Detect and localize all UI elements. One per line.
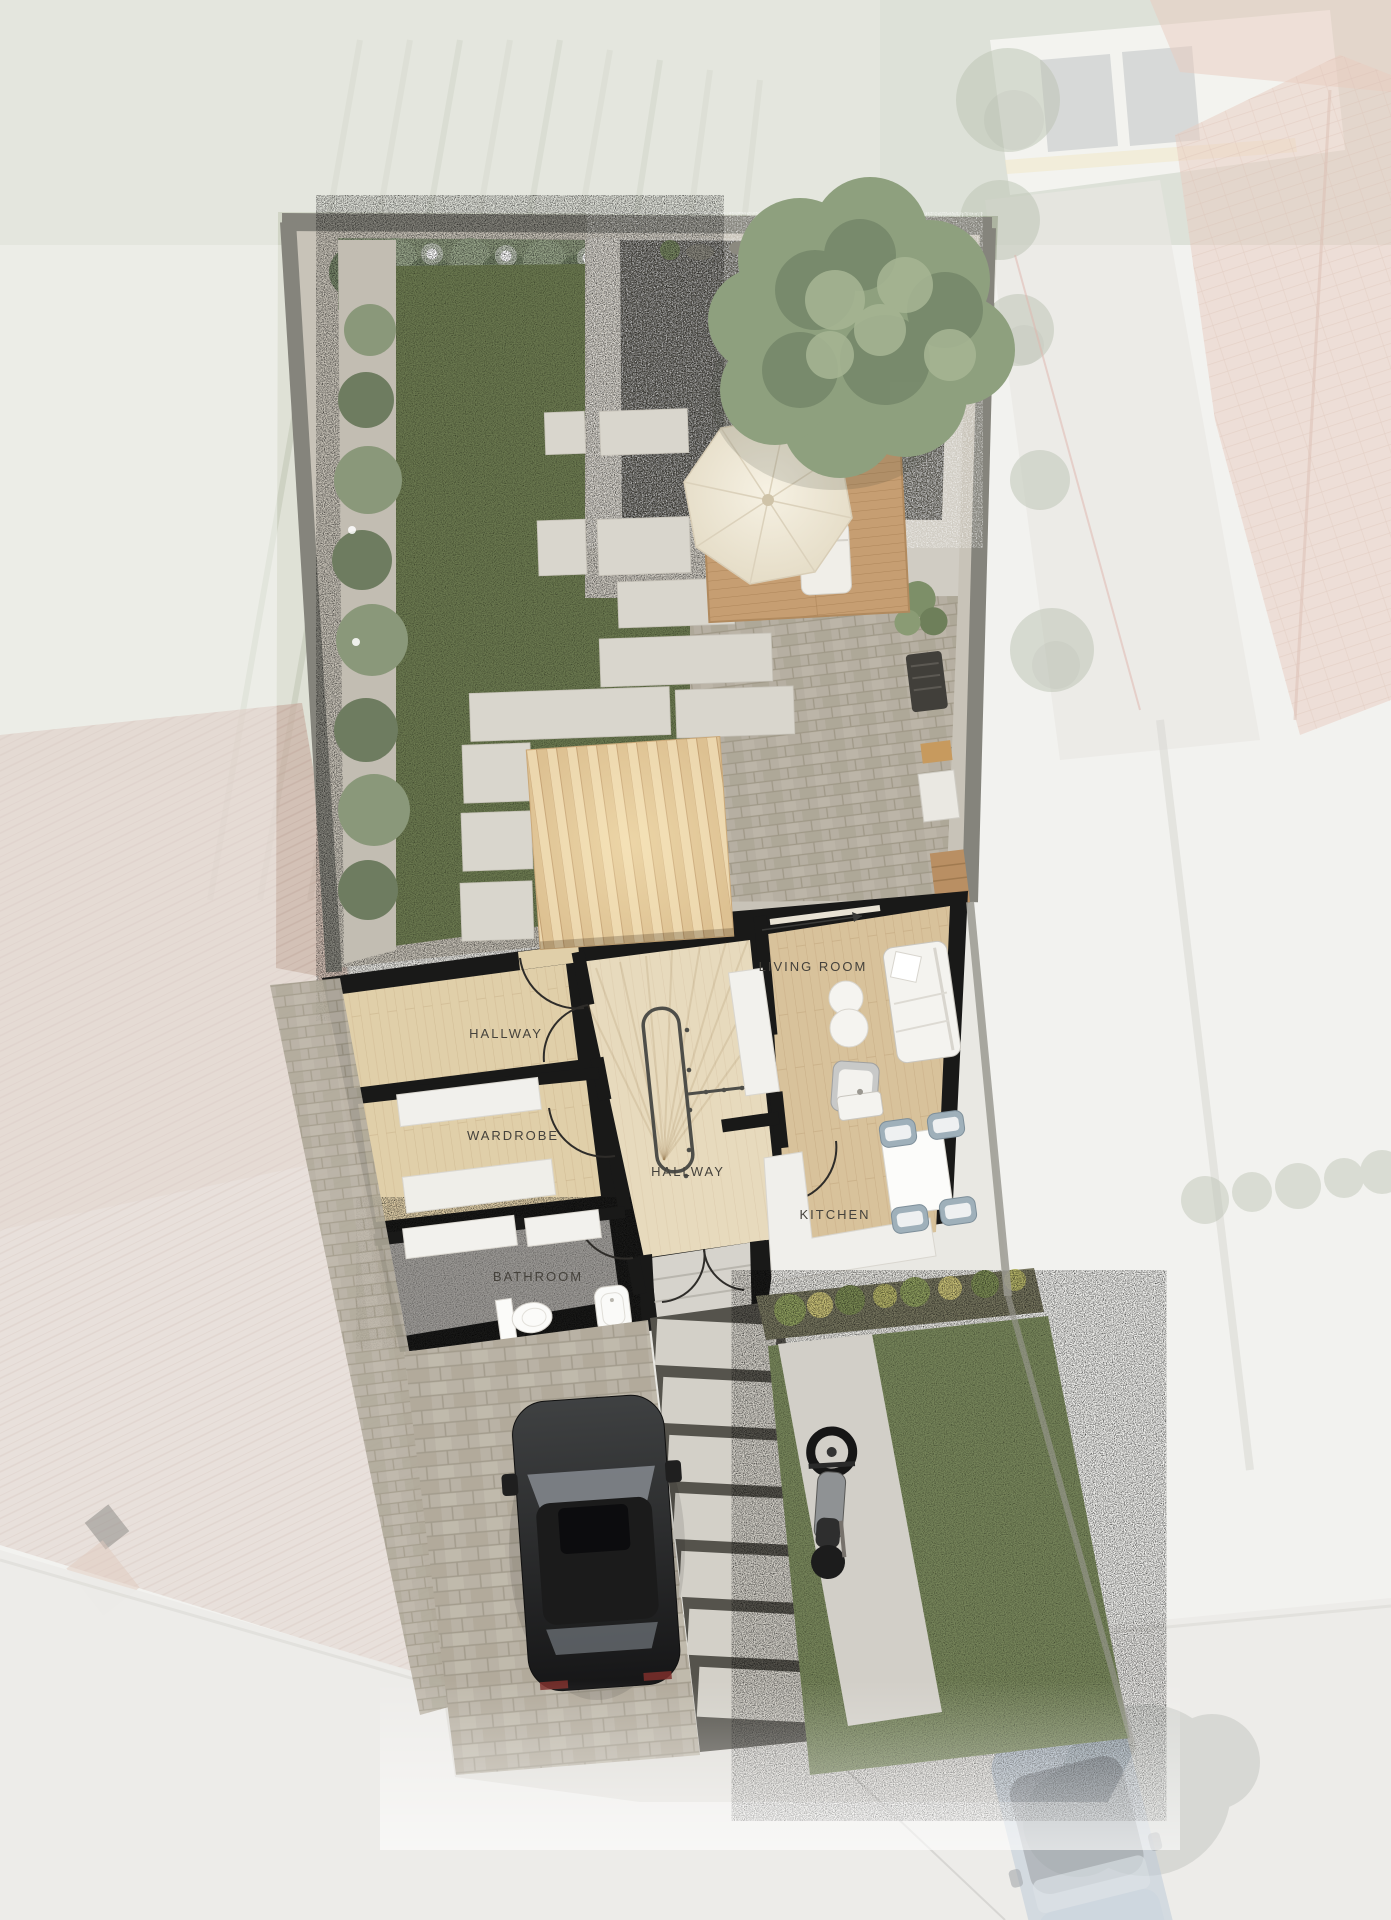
room-label-hallway-central: HALLWAY <box>651 1164 725 1179</box>
room-label-living-room: LIVING ROOM <box>759 959 868 974</box>
pillow <box>891 951 922 982</box>
room-label-hallway-upper: HALLWAY <box>469 1026 543 1041</box>
outdoor-cabinet <box>918 770 960 822</box>
cutting-board <box>920 740 952 764</box>
room-label-bathroom: BATHROOM <box>493 1269 583 1284</box>
sunroof <box>558 1504 631 1555</box>
road-transition-fade <box>380 1680 1180 1850</box>
site-plan-svg: HALLWAY WARDROBE BATHROOM HALLWAY LIVING… <box>0 0 1391 1920</box>
pergola-canopy <box>526 736 733 949</box>
site-plan-render: HALLWAY WARDROBE BATHROOM HALLWAY LIVING… <box>0 0 1391 1920</box>
grill <box>905 651 948 713</box>
side-mirror <box>665 1460 682 1483</box>
room-label-wardrobe: WARDROBE <box>467 1128 559 1143</box>
room-label-kitchen: KITCHEN <box>799 1207 870 1222</box>
round-side-table <box>830 1009 868 1047</box>
side-mirror <box>501 1473 518 1496</box>
